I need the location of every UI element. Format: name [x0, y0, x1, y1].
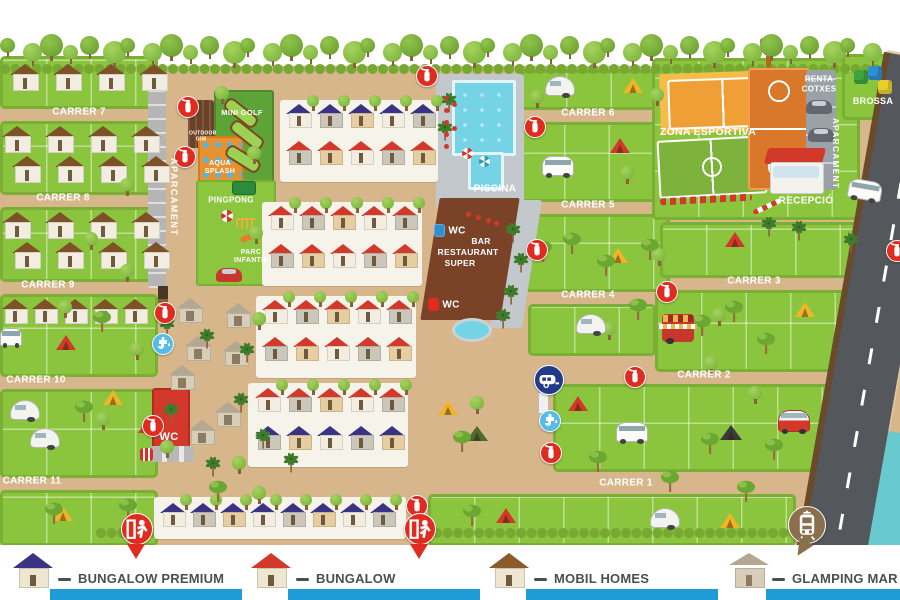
tent	[725, 232, 745, 247]
tree	[276, 379, 288, 391]
pine-tree	[764, 436, 784, 462]
house	[386, 300, 412, 323]
legend-dash	[534, 578, 547, 581]
pine-tree	[74, 398, 94, 424]
house	[141, 156, 171, 182]
fire-extinguisher-icon	[177, 96, 199, 118]
tree	[783, 45, 798, 60]
food-truck	[662, 314, 694, 342]
legend-mobil-homes-icon	[488, 551, 530, 589]
glamping-hut	[187, 420, 217, 444]
tree	[470, 396, 484, 410]
house	[139, 64, 169, 90]
house	[324, 300, 350, 323]
tree	[249, 226, 263, 240]
tree	[58, 300, 72, 314]
street-label-carrer-5: CARRER 5	[561, 199, 615, 210]
tree	[215, 86, 229, 100]
recycling-bin-blue	[868, 66, 882, 80]
tree	[560, 36, 579, 55]
tree	[289, 197, 301, 209]
restaurant-label-1: BAR	[471, 237, 490, 247]
legend-bar	[50, 589, 242, 600]
tree	[307, 379, 319, 391]
house	[12, 156, 42, 182]
house	[262, 337, 288, 360]
legend-label: MOBIL HOMES	[554, 571, 649, 586]
pine-tree	[92, 308, 112, 334]
tent	[623, 78, 643, 93]
tree	[0, 38, 15, 53]
pool-chair	[494, 221, 499, 226]
tree	[840, 38, 855, 53]
house	[286, 426, 312, 449]
tree	[247, 146, 261, 160]
recycling-bin-green	[854, 70, 868, 84]
house	[386, 337, 412, 360]
caravan	[10, 400, 40, 420]
legend-dash	[296, 578, 309, 581]
pine-tree	[588, 448, 608, 474]
caravan	[650, 508, 680, 528]
house	[348, 426, 374, 449]
glamping-hut	[175, 298, 205, 322]
tree	[760, 34, 783, 57]
palm-tree	[254, 428, 272, 451]
carousel	[221, 210, 233, 222]
house	[355, 300, 381, 323]
fire-extinguisher-icon	[154, 302, 176, 324]
house	[2, 299, 28, 323]
tree	[120, 264, 134, 278]
reception-label: RECEPCIÓ	[779, 195, 834, 206]
palm-tree	[204, 456, 222, 479]
outdoor-gym-label: OUTDOOR GIM	[189, 131, 213, 142]
tree	[360, 494, 372, 506]
car-wash-label-1: RENTA	[805, 76, 833, 85]
tree	[63, 45, 78, 60]
tent	[568, 396, 588, 411]
house	[330, 244, 356, 267]
tree	[620, 166, 634, 180]
tree	[307, 95, 319, 107]
tree	[180, 494, 192, 506]
tent	[438, 400, 458, 415]
signpost	[158, 286, 168, 303]
house	[299, 244, 325, 267]
car	[806, 100, 832, 114]
house	[286, 104, 312, 127]
parcel-block	[520, 70, 670, 110]
tree	[543, 45, 558, 60]
wc-sign-red	[428, 298, 439, 311]
tree	[120, 38, 135, 53]
legend-bar	[526, 589, 718, 600]
exit-arrow-icon	[410, 544, 428, 559]
house	[190, 503, 216, 526]
legend-bungalow-icon	[250, 551, 292, 589]
palm-tree	[162, 402, 180, 425]
house	[286, 388, 312, 411]
palm-tree	[494, 308, 512, 331]
palm-tree	[760, 216, 778, 239]
house	[131, 126, 161, 152]
tent	[795, 302, 815, 317]
tree	[520, 34, 543, 57]
pool-chair	[444, 132, 449, 137]
house	[53, 64, 83, 90]
street-label-carrer-11: CARRER 11	[3, 475, 62, 486]
tree	[240, 38, 255, 53]
house	[348, 388, 374, 411]
street-label-carrer-8: CARRER 8	[36, 192, 90, 203]
tree	[480, 38, 495, 53]
tree	[270, 494, 282, 506]
house	[392, 244, 418, 267]
pool-chair	[452, 102, 457, 107]
house	[131, 212, 161, 238]
tree	[345, 291, 357, 303]
wc-people-sign	[140, 448, 153, 461]
tree	[530, 90, 544, 104]
house	[2, 126, 32, 152]
house	[379, 141, 405, 164]
motorhome-service-icon	[534, 365, 564, 395]
legend-label: GLAMPING MAR	[792, 571, 898, 586]
pine-tree	[736, 478, 756, 504]
car	[216, 268, 242, 282]
pool-chair	[444, 120, 449, 125]
pine-tree	[756, 330, 776, 356]
house	[10, 64, 40, 90]
campsite-map: CARRER 7 CARRER 8 CARRER 9 CARRER 10 CAR…	[0, 0, 900, 600]
tree	[320, 197, 332, 209]
parking-label-right: APARCAMENT	[831, 118, 840, 189]
parasol-icon	[462, 148, 473, 159]
tree	[390, 494, 402, 506]
tree	[720, 38, 735, 53]
street-label-carrer-1: CARRER 1	[599, 477, 653, 488]
tree	[240, 494, 252, 506]
tree	[160, 34, 183, 57]
house	[340, 503, 366, 526]
house	[122, 299, 148, 323]
pool-chair	[452, 126, 457, 131]
pine-tree	[208, 478, 228, 504]
house	[32, 299, 58, 323]
tree	[376, 291, 388, 303]
tree	[303, 45, 318, 60]
pingpong-table	[232, 181, 256, 195]
tree	[748, 386, 762, 400]
tree	[704, 356, 718, 370]
tree	[80, 36, 99, 55]
reception-windows	[773, 166, 819, 178]
tree	[96, 412, 110, 426]
tree	[40, 34, 63, 57]
house	[160, 503, 186, 526]
tree	[413, 197, 425, 209]
pine-tree	[452, 428, 472, 454]
house	[361, 206, 387, 229]
pool-chair	[476, 215, 481, 220]
emergency-exit-icon	[404, 513, 436, 545]
pingpong-label: PINGPONG	[208, 197, 254, 206]
street-label-carrer-3: CARRER 3	[727, 275, 781, 286]
house	[379, 388, 405, 411]
glamping-hut	[167, 365, 197, 389]
palm-tree	[198, 328, 216, 351]
pine-tree	[640, 236, 660, 262]
pine-tree	[700, 430, 720, 456]
car-wash-label-2: COTXES	[802, 86, 837, 95]
glamping-hut	[223, 303, 253, 327]
tree	[407, 291, 419, 303]
house	[361, 244, 387, 267]
tent	[720, 513, 740, 528]
tent	[56, 335, 76, 350]
legend-label: BUNGALOW PREMIUM	[78, 571, 224, 586]
waste-label: BROSSA	[853, 96, 893, 106]
house	[250, 503, 276, 526]
legend-bar	[288, 589, 480, 600]
house	[299, 206, 325, 229]
palm-tree	[504, 222, 522, 245]
tree	[863, 43, 882, 62]
tree	[338, 95, 350, 107]
house	[293, 300, 319, 323]
camper-van	[616, 422, 648, 442]
fire-extinguisher-icon	[526, 239, 548, 261]
pine-tree	[44, 500, 64, 526]
house	[317, 426, 343, 449]
tree	[351, 197, 363, 209]
caravan	[545, 76, 575, 96]
house	[96, 64, 126, 90]
tree	[200, 36, 219, 55]
street-label-carrer-10: CARRER 10	[6, 374, 65, 385]
house	[55, 242, 85, 268]
house	[355, 337, 381, 360]
tree	[663, 45, 678, 60]
palm-tree	[238, 342, 256, 365]
house	[141, 242, 171, 268]
tree	[369, 95, 381, 107]
street-label-carrer-9: CARRER 9	[21, 279, 75, 290]
house	[12, 242, 42, 268]
minigolf-label: MINI GOLF	[221, 109, 262, 117]
tree	[800, 36, 819, 55]
emergency-exit-icon	[121, 513, 153, 545]
wc-label-pool-bottom: WC	[442, 299, 459, 310]
restaurant-label-3: SUPER	[445, 259, 476, 269]
house	[379, 104, 405, 127]
wc-sign-blue	[434, 224, 445, 237]
tree	[330, 494, 342, 506]
vw-bus	[778, 410, 810, 432]
palm-tree	[282, 452, 300, 475]
pine-tree	[562, 230, 582, 256]
tree	[314, 291, 326, 303]
wc-label-pool-top: WC	[448, 225, 465, 236]
house	[280, 503, 306, 526]
caravan	[576, 314, 606, 334]
legend-dash	[58, 578, 71, 581]
recycling-bin-yellow	[878, 80, 892, 94]
playground-label: PARC INFANTIL	[230, 249, 272, 265]
tent	[720, 425, 742, 440]
house	[45, 212, 75, 238]
top-margin	[0, 0, 900, 30]
fire-extinguisher-icon	[656, 281, 678, 303]
pool-chair	[444, 144, 449, 149]
restaurant-label-2: RESTAURANT	[438, 248, 499, 258]
palm-tree	[790, 220, 808, 243]
pool-chair	[444, 108, 449, 113]
legend-label: BUNGALOW	[316, 571, 396, 586]
tree	[232, 456, 246, 470]
swimming-pool	[452, 80, 516, 156]
tree	[382, 197, 394, 209]
house	[317, 388, 343, 411]
pine-tree	[724, 298, 744, 324]
tree	[130, 342, 144, 356]
sports-zone-label: ZONA ESPORTIVA	[660, 127, 756, 139]
house	[392, 206, 418, 229]
tree	[440, 36, 459, 55]
tree	[252, 312, 266, 326]
palm-tree	[842, 232, 860, 255]
street-label-carrer-4: CARRER 4	[561, 289, 615, 300]
house	[268, 206, 294, 229]
tree	[84, 232, 98, 246]
water-tap-icon	[152, 333, 174, 355]
tree	[650, 88, 664, 102]
parking-label-left: APARCAMENT	[169, 158, 179, 236]
house	[379, 426, 405, 449]
palm-tree	[232, 392, 250, 415]
legend-glamping-icon	[728, 551, 770, 589]
house	[317, 141, 343, 164]
house	[330, 206, 356, 229]
tent	[103, 390, 123, 405]
house	[255, 388, 281, 411]
pool-chair	[444, 96, 449, 101]
tree	[183, 45, 198, 60]
caravan	[30, 428, 60, 448]
tree	[400, 95, 412, 107]
street-label-carrer-7: CARRER 7	[52, 106, 106, 117]
tree	[338, 379, 350, 391]
wc-label-camping: WC	[160, 431, 179, 443]
tree	[400, 34, 423, 57]
house	[410, 141, 436, 164]
tree	[400, 379, 412, 391]
pool-label: PISCINA	[474, 183, 517, 194]
fire-extinguisher-icon	[524, 116, 546, 138]
house	[88, 126, 118, 152]
bus-stop-icon	[788, 506, 826, 544]
tree	[680, 36, 699, 55]
tree	[252, 486, 266, 500]
tree	[423, 45, 438, 60]
aqua-splash-label: AQUA SPLASH	[203, 160, 237, 176]
fire-extinguisher-icon	[886, 240, 900, 262]
camper-van	[542, 156, 574, 176]
fire-extinguisher-icon	[416, 65, 438, 87]
house	[220, 503, 246, 526]
exit-arrow-icon	[127, 544, 145, 559]
parasol-icon	[479, 156, 490, 167]
tree	[300, 494, 312, 506]
pond	[452, 318, 492, 342]
pool-chair	[486, 218, 491, 223]
pool-chair	[466, 212, 471, 217]
house	[286, 141, 312, 164]
tree	[369, 379, 381, 391]
legend-bar	[766, 589, 900, 600]
legend-dash	[772, 578, 785, 581]
tree	[283, 291, 295, 303]
fire-extinguisher-icon	[540, 442, 562, 464]
house	[55, 156, 85, 182]
house	[348, 104, 374, 127]
house	[348, 141, 374, 164]
house	[45, 126, 75, 152]
house	[324, 337, 350, 360]
house	[317, 104, 343, 127]
tree	[280, 34, 303, 57]
tree	[320, 36, 339, 55]
camper-van	[0, 328, 22, 346]
tree	[640, 34, 663, 57]
house	[2, 212, 32, 238]
water-tap-icon	[539, 410, 561, 432]
tree	[600, 38, 615, 53]
pine-tree	[628, 296, 648, 322]
tent	[610, 138, 630, 153]
house	[293, 337, 319, 360]
street-label-carrer-6: CARRER 6	[561, 107, 615, 118]
street-label-carrer-2: CARRER 2	[677, 369, 731, 380]
house	[410, 104, 436, 127]
legend-bungalow-premium-icon	[12, 551, 54, 589]
fire-extinguisher-icon	[624, 366, 646, 388]
tent	[496, 508, 516, 523]
house	[370, 503, 396, 526]
tree	[120, 178, 134, 192]
tree	[360, 38, 375, 53]
pine-tree	[462, 502, 482, 528]
pine-tree	[596, 252, 616, 278]
pine-tree	[660, 468, 680, 494]
house	[310, 503, 336, 526]
palm-tree	[502, 284, 520, 307]
